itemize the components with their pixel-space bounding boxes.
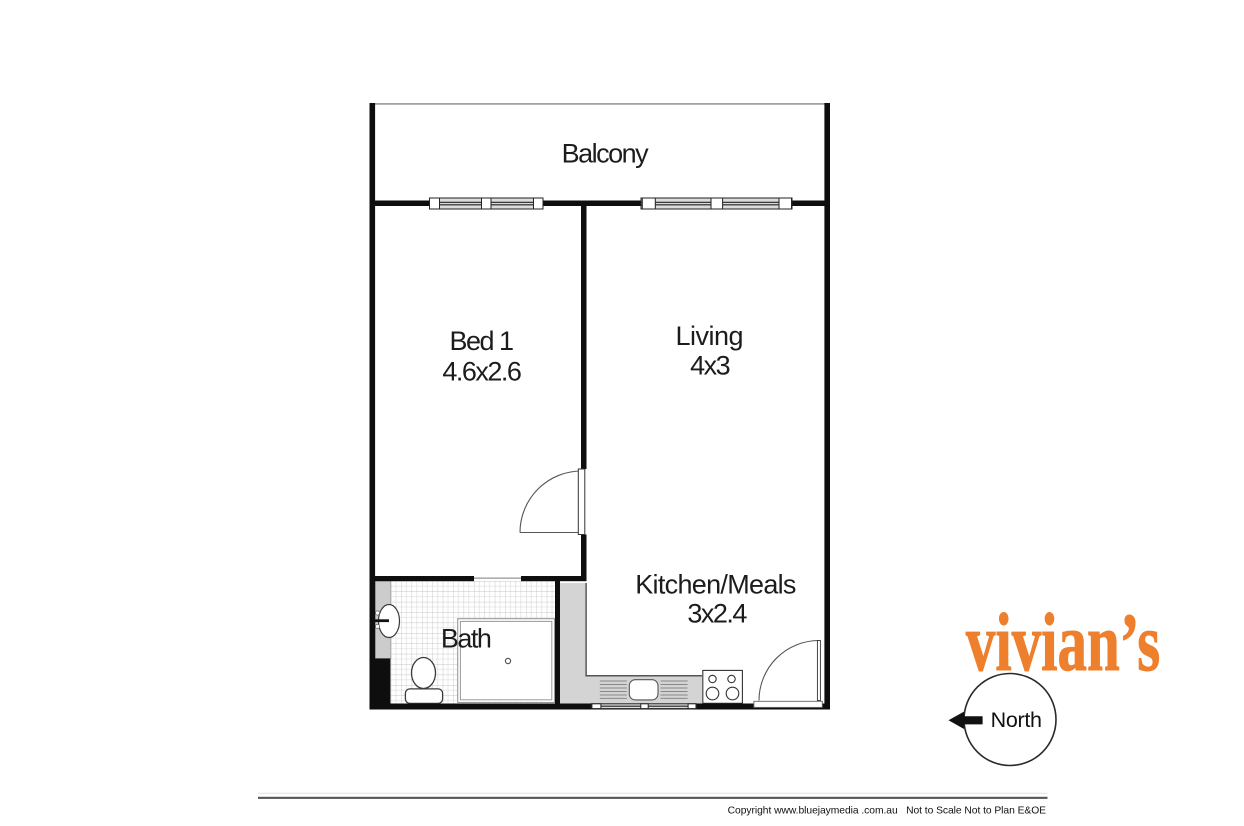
svg-text:Kitchen/Meals: Kitchen/Meals <box>635 569 796 599</box>
svg-text:North: North <box>991 708 1042 732</box>
svg-text:Bath: Bath <box>441 623 491 653</box>
svg-text:Balcony: Balcony <box>562 139 650 169</box>
svg-text:4.6x2.6: 4.6x2.6 <box>442 356 521 386</box>
svg-text:3x2.4: 3x2.4 <box>687 598 747 628</box>
svg-text:Living: Living <box>676 321 744 351</box>
svg-text:vivian’s: vivian’s <box>966 596 1160 688</box>
svg-text:Bed 1: Bed 1 <box>449 326 513 356</box>
svg-text:Copyright www.bluejaymedia .co: Copyright www.bluejaymedia .com.au Not t… <box>728 806 1047 817</box>
svg-text:4x3: 4x3 <box>690 351 730 381</box>
